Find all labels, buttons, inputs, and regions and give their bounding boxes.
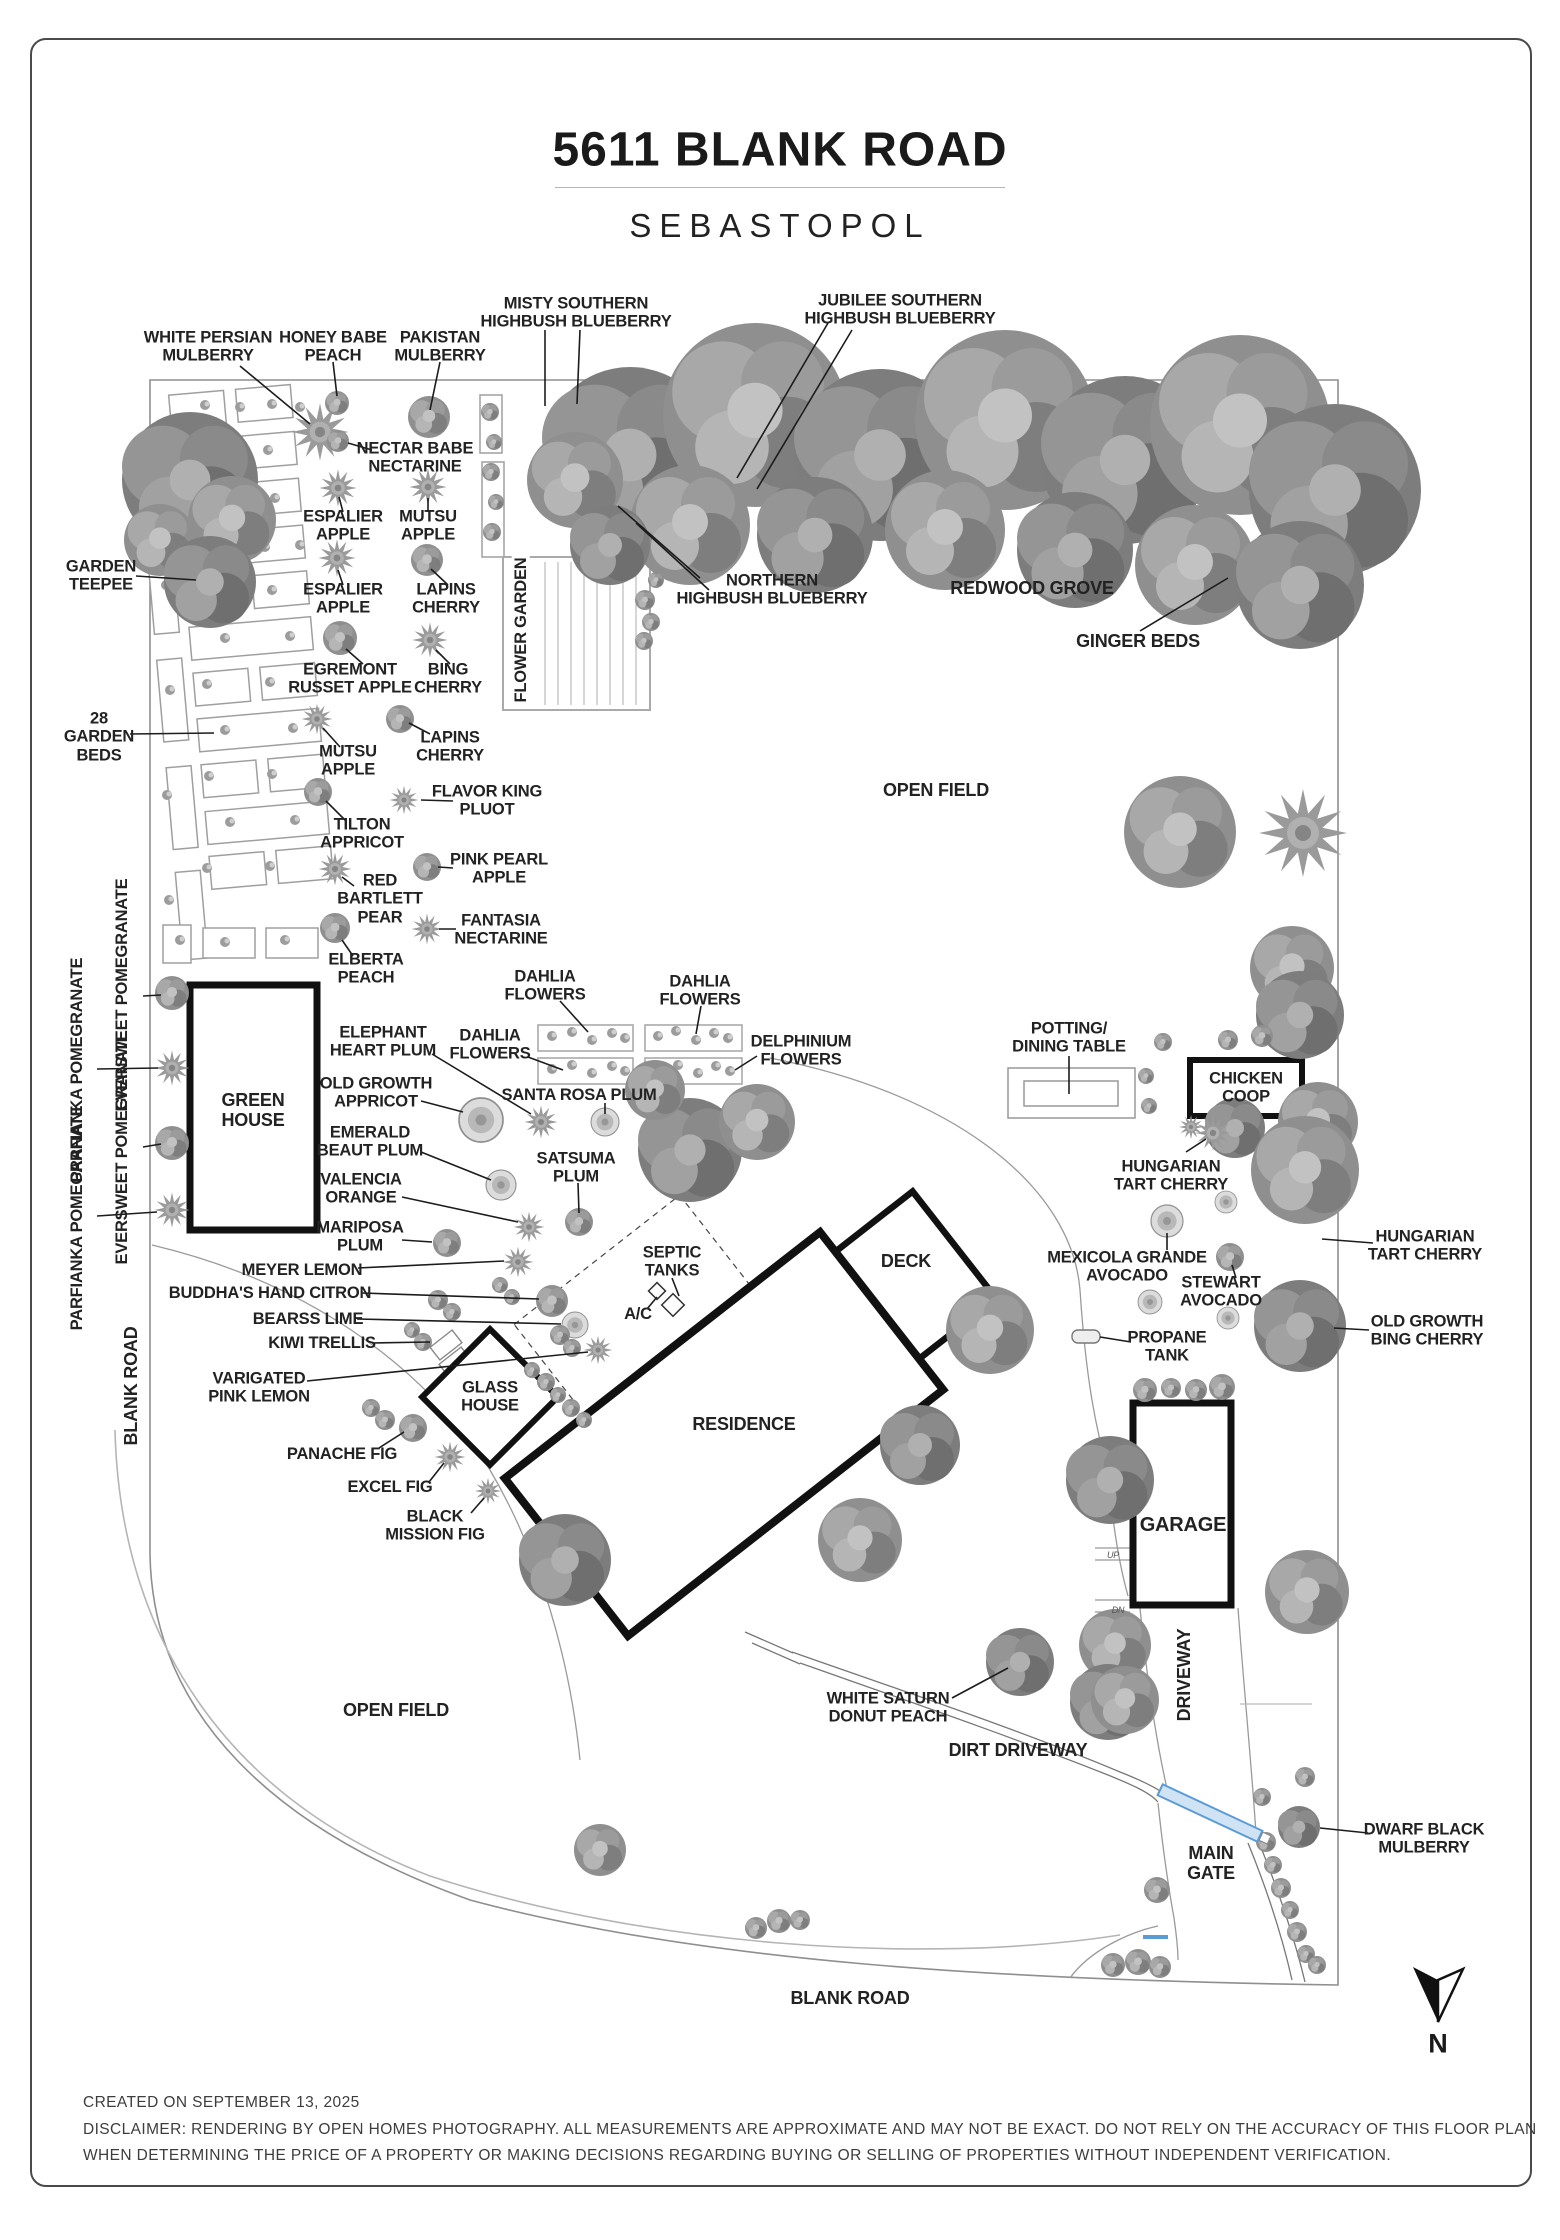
label-mutsu-apple-1: MUTSU APPLE xyxy=(399,508,457,545)
label-stewart-avocado: STEWART AVOCADO xyxy=(1180,1274,1262,1311)
label-tilton-appricot: TILTON APPRICOT xyxy=(320,816,404,853)
label-meyer-lemon: MEYER LEMON xyxy=(242,1261,363,1279)
page-subtitle: SEBASTOPOL xyxy=(629,207,930,245)
label-varigated-pink-lemon: VARIGATED PINK LEMON xyxy=(208,1370,310,1407)
label-dahlia-flowers-2: DAHLIA FLOWERS xyxy=(659,973,740,1010)
label-parfianka-pomegranate-2: PARFIANKA POMEGRANATE xyxy=(68,1106,86,1331)
label-deck: DECK xyxy=(881,1251,931,1271)
label-28-garden-beds: 28 GARDEN BEDS xyxy=(64,709,134,764)
label-bing-cherry: BING CHERRY xyxy=(414,661,482,698)
label-white-persian-mulberry: WHITE PERSIAN MULBERRY xyxy=(144,329,273,366)
label-potting-dining-table: POTTING/ DINING TABLE xyxy=(1012,1020,1126,1057)
page-title: 5611 BLANK ROAD xyxy=(552,123,1007,178)
label-jubilee-blueberry: JUBILEE SOUTHERN HIGHBUSH BLUEBERRY xyxy=(804,292,995,329)
label-residence: RESIDENCE xyxy=(692,1414,795,1434)
label-lapins-cherry-1: LAPINS CHERRY xyxy=(412,581,480,618)
label-dirt-driveway: DIRT DRIVEWAY xyxy=(949,1740,1088,1760)
label-blank-road-left: BLANK ROAD xyxy=(121,1327,141,1446)
potting-table-shape xyxy=(1008,1068,1135,1118)
label-bearss-lime: BEARSS LIME xyxy=(253,1310,364,1328)
label-old-growth-bing-cherry: OLD GROWTH BING CHERRY xyxy=(1371,1313,1484,1350)
label-elberta-peach: ELBERTA PEACH xyxy=(328,951,403,988)
title-divider xyxy=(555,187,1005,188)
label-ac-unit: A/C xyxy=(624,1305,652,1323)
label-santa-rosa-plum: SANTA ROSA PLUM xyxy=(502,1086,657,1104)
label-glass-house: GLASS HOUSE xyxy=(461,1379,519,1416)
garage-shape xyxy=(1133,1403,1231,1605)
label-main-gate: MAIN GATE xyxy=(1187,1843,1235,1883)
label-egremont-russet-apple: EGREMONT RUSSET APPLE xyxy=(288,661,412,698)
ac-unit-shape xyxy=(649,1283,685,1317)
label-open-field-top: OPEN FIELD xyxy=(883,780,989,800)
label-open-field-bottom: OPEN FIELD xyxy=(343,1700,449,1720)
label-buddhas-hand-citron: BUDDHA'S HAND CITRON xyxy=(169,1284,372,1302)
label-pink-pearl-apple: PINK PEARL APPLE xyxy=(450,851,548,888)
label-septic-tanks: SEPTIC TANKS xyxy=(643,1244,701,1281)
label-eversweet-pomegranate-2: EVERSWEET POMEGRANATE xyxy=(113,1032,131,1265)
label-old-growth-appricot: OLD GROWTH APPRICOT xyxy=(320,1075,433,1112)
label-honey-babe-peach: HONEY BABE PEACH xyxy=(279,329,387,366)
footer-disclaimer-1: DISCLAIMER: RENDERING BY OPEN HOMES PHOT… xyxy=(83,2121,1537,2139)
footer-created: CREATED ON SEPTEMBER 13, 2025 xyxy=(83,2094,360,2112)
label-dahlia-flowers-3: DAHLIA FLOWERS xyxy=(449,1027,530,1064)
label-red-bartlett-pear: RED BARTLETT PEAR xyxy=(337,871,422,926)
label-mariposa-plum: MARIPOSA PLUM xyxy=(316,1219,403,1256)
label-valencia-orange: VALENCIA ORANGE xyxy=(320,1171,402,1208)
label-emerald-beaut-plum: EMERALD BEAUT PLUM xyxy=(317,1124,423,1161)
label-mutsu-apple-2: MUTSU APPLE xyxy=(319,743,377,780)
label-misty-blueberry: MISTY SOUTHERN HIGHBUSH BLUEBERRY xyxy=(480,295,671,332)
label-excel-fig: EXCEL FIG xyxy=(348,1478,433,1496)
label-lapins-cherry-2: LAPINS CHERRY xyxy=(416,729,484,766)
label-flavor-king-pluot: FLAVOR KING PLUOT xyxy=(432,783,542,820)
footer-disclaimer-2: WHEN DETERMINING THE PRICE OF A PROPERTY… xyxy=(83,2147,1391,2165)
label-flower-garden: FLOWER GARDEN xyxy=(512,555,530,706)
label-green-house: GREEN HOUSE xyxy=(221,1090,284,1130)
label-ginger-beds: GINGER BEDS xyxy=(1076,631,1200,651)
label-driveway: DRIVEWAY xyxy=(1174,1629,1194,1722)
label-dwarf-black-mulberry: DWARF BLACK MULBERRY xyxy=(1364,1821,1485,1858)
label-white-saturn-donut-peach: WHITE SATURN DONUT PEACH xyxy=(827,1690,950,1727)
label-northern-blueberry: NORTHERN HIGHBUSH BLUEBERRY xyxy=(676,572,867,609)
label-elephant-heart-plum: ELEPHANT HEART PLUM xyxy=(330,1024,436,1061)
label-hungarian-tart-cherry-1: HUNGARIAN TART CHERRY xyxy=(1114,1158,1228,1195)
label-espalier-apple-2: ESPALIER APPLE xyxy=(303,581,383,618)
label-panache-fig: PANACHE FIG xyxy=(287,1445,397,1463)
label-garage: GARAGE xyxy=(1140,1514,1227,1536)
north-letter: N xyxy=(1428,2029,1448,2060)
label-blank-road-bottom: BLANK ROAD xyxy=(791,1988,910,2008)
label-chicken-coop: CHICKEN COOP xyxy=(1209,1070,1283,1107)
label-black-mission-fig: BLACK MISSION FIG xyxy=(385,1508,485,1545)
label-satsuma-plum: SATSUMA PLUM xyxy=(537,1150,616,1187)
label-espalier-apple-1: ESPALIER APPLE xyxy=(303,508,383,545)
label-kiwi-trellis: KIWI TRELLIS xyxy=(268,1334,376,1352)
label-propane-tank: PROPANE TANK xyxy=(1128,1329,1207,1366)
label-nectar-babe-nectarine: NECTAR BABE NECTARINE xyxy=(357,440,474,477)
propane-tank-shape xyxy=(1072,1330,1100,1343)
label-pakistan-mulberry: PAKISTAN MULBERRY xyxy=(394,329,485,366)
label-up: UP xyxy=(1107,1550,1119,1560)
site-plan-page: 5611 BLANK ROAD SEBASTOPOL WHITE PERSIAN… xyxy=(0,0,1560,2240)
label-fantasia-nectarine: FANTASIA NECTARINE xyxy=(454,912,547,949)
label-redwood-grove: REDWOOD GROVE xyxy=(950,578,1113,598)
label-delphinium-flowers: DELPHINIUM FLOWERS xyxy=(751,1033,852,1070)
north-arrow-icon xyxy=(1413,1967,1463,2022)
label-dahlia-flowers-1: DAHLIA FLOWERS xyxy=(504,968,585,1005)
label-dn: DN xyxy=(1112,1605,1125,1615)
label-hungarian-tart-cherry-2: HUNGARIAN TART CHERRY xyxy=(1368,1228,1482,1265)
label-garden-teepee: GARDEN TEEPEE xyxy=(66,558,136,595)
